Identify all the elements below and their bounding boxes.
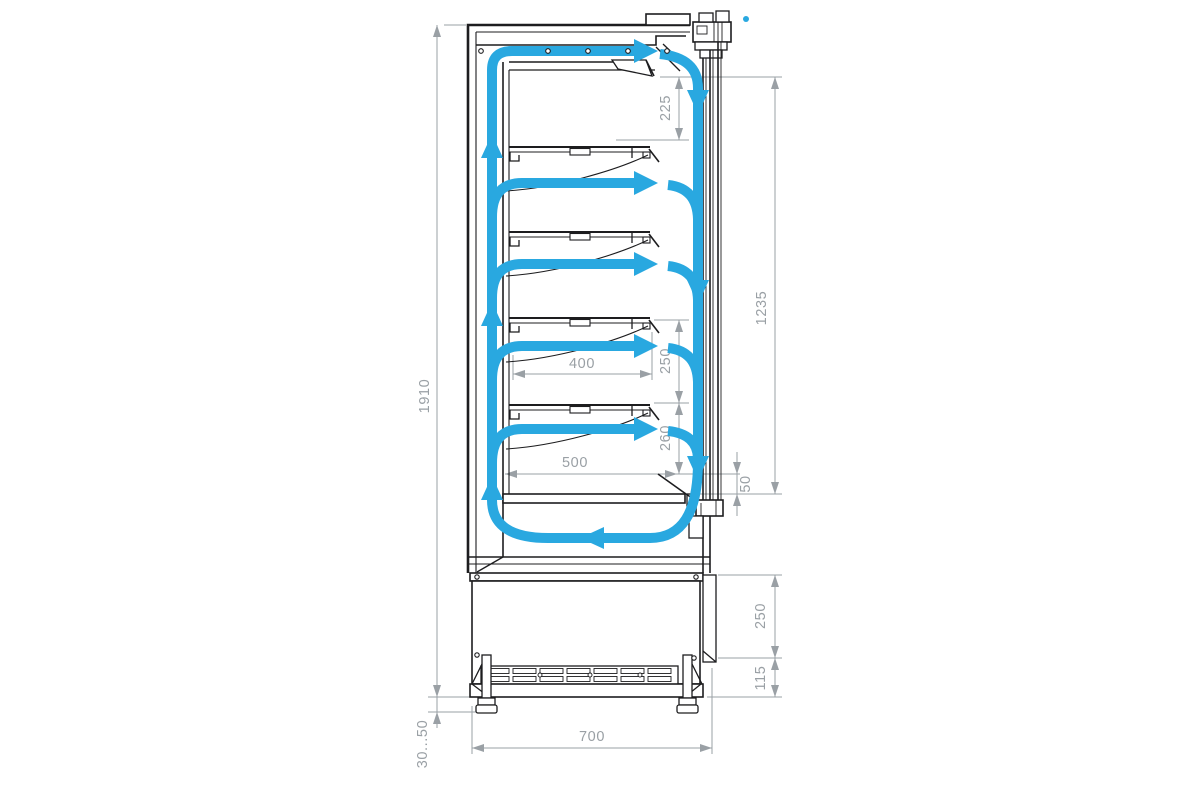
airflow-shelf-branch xyxy=(492,183,634,217)
dim-label-115: 115 xyxy=(753,666,769,691)
canopy-cover xyxy=(646,14,690,25)
dimension-deck-depth: 500 xyxy=(505,455,677,474)
dimension-vent-height: 115 xyxy=(753,658,775,697)
dim-label-500: 500 xyxy=(562,455,588,471)
airflow-arrowhead xyxy=(481,476,503,500)
airflow-arrowhead xyxy=(634,171,658,195)
cabinet-structure xyxy=(468,11,749,713)
back-wall xyxy=(468,25,690,573)
top-air-duct xyxy=(476,14,690,76)
dimension-foot-adjust: 30...50 xyxy=(415,697,437,768)
airflow-arrowhead xyxy=(634,334,658,358)
dim-label-1235: 1235 xyxy=(754,291,770,326)
machine-base xyxy=(470,573,716,713)
airflow-arrows xyxy=(481,39,709,549)
display-case-section-diagram: 1910 30...50 225 250 260 50 xyxy=(0,0,1200,800)
dimension-overall-height: 1910 xyxy=(417,25,437,697)
bottom-deck xyxy=(503,474,695,503)
dim-label-225: 225 xyxy=(658,95,674,121)
dim-label-250-base: 250 xyxy=(753,603,769,629)
dimension-front-opening: 1235 xyxy=(754,77,775,494)
dimension-shelf-pitch: 250 xyxy=(658,320,679,403)
dim-label-400: 400 xyxy=(569,356,595,372)
ventilation-grille xyxy=(481,666,678,685)
dim-label-30-50: 30...50 xyxy=(415,720,431,769)
door-bottom-rail xyxy=(696,500,723,516)
airflow-arrowhead xyxy=(634,252,658,276)
dim-label-1910: 1910 xyxy=(417,379,433,414)
dimension-shelf-to-deck: 260 xyxy=(658,403,679,474)
airflow-shelf-branch xyxy=(492,264,634,298)
air-deflector xyxy=(612,60,652,76)
airflow-arrowhead xyxy=(481,134,503,158)
airflow-arrowhead xyxy=(634,417,658,441)
airflow-arrowhead xyxy=(481,302,503,326)
hinge-pin xyxy=(743,16,749,22)
dim-label-700: 700 xyxy=(579,729,605,745)
dim-label-50: 50 xyxy=(738,475,754,492)
dimension-top-air-gap: 225 xyxy=(658,77,679,140)
condenser-panel xyxy=(703,575,716,662)
dimension-return-gap: 50 xyxy=(737,452,754,516)
dimension-overall-depth: 700 xyxy=(472,729,712,748)
dimension-base-height: 250 xyxy=(753,575,775,658)
airflow-arrowhead xyxy=(580,527,604,549)
